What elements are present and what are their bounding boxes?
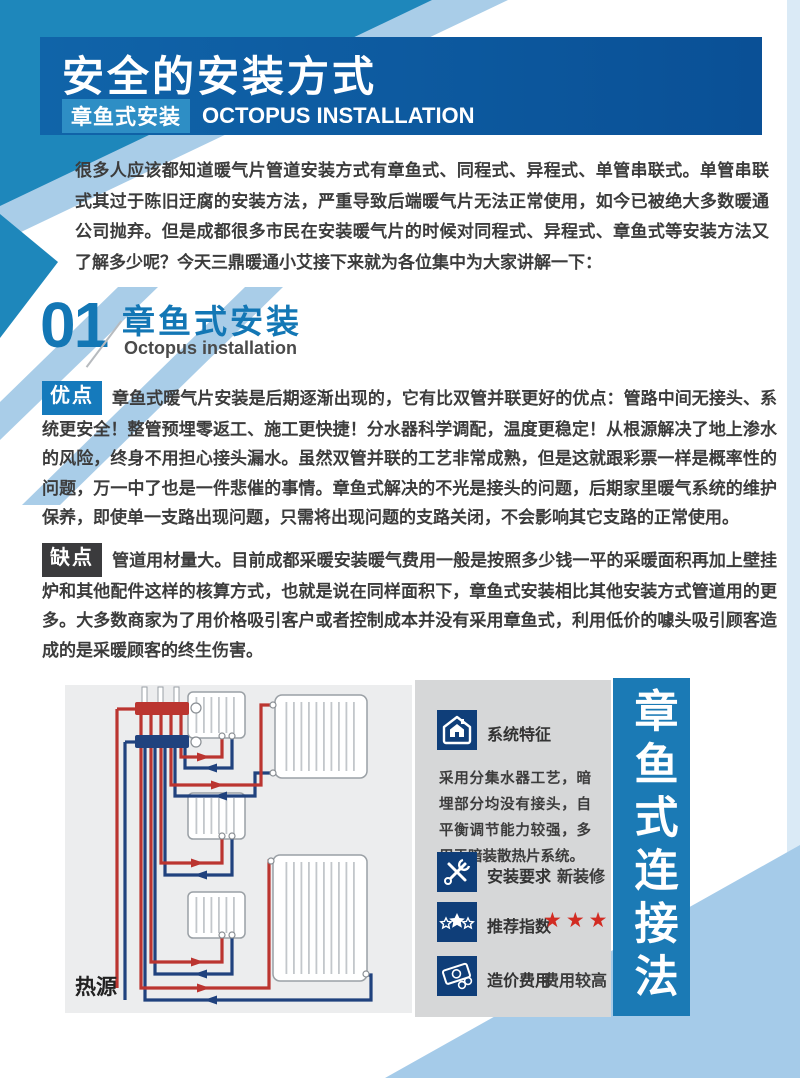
radiator-small-middle [188,793,245,839]
cost-row: 造价费用 费用较高 [415,956,611,996]
poster-page: 安全的安装方式 章鱼式安装 OCTOPUS INSTALLATION 很多人应该… [0,0,800,1078]
header-band: 安全的安装方式 章鱼式安装 OCTOPUS INSTALLATION [40,37,762,135]
header-subtitle-en: OCTOPUS INSTALLATION [202,103,475,129]
cons-text: 管道用材量大。目前成都采暖安装暖气费用一般是按照多少钱一平的采暖面积再加上壁挂炉… [42,551,777,660]
right-edge-strip [787,0,800,900]
section-subtitle-en: Octopus installation [124,338,297,359]
page-title: 安全的安装方式 [62,43,377,104]
cost-value: 费用较高 [543,967,607,991]
money-icon [437,956,477,996]
section-title: 章鱼式安装 [122,295,302,343]
pros-paragraph: 优点章鱼式暖气片安装是后期逐渐出现的，它有比双管并联更好的优点：管路中间无接头、… [42,381,777,533]
piping-diagram-panel: 热源 [65,685,412,1013]
info-panel: 系统特征 采用分集水器工艺，暗埋部分均没有接头，自平衡调节能力较强，多用于暗装散… [415,680,611,1017]
side-banner-text: 章鱼式连接法 [630,688,674,1006]
rating-label: 推荐指数 [487,913,551,937]
pros-badge: 优点 [42,381,102,415]
side-banner: 章鱼式连接法 [613,678,690,1016]
install-row: 安装要求 新装修 [415,852,611,892]
install-label: 安装要求 [487,863,551,887]
radiator-large-bottom-right [273,855,367,981]
intro-paragraph: 很多人应该都知道暖气片管道安装方式有章鱼式、同程式、异程式、单管串联式。单管串联… [75,156,769,278]
radiator-large-top-right [275,695,367,778]
octopus-piping-diagram [65,685,412,1013]
stars-icon [437,902,477,942]
feature-label: 系统特征 [487,721,551,745]
header-subtitle-row: 章鱼式安装 OCTOPUS INSTALLATION [62,99,475,133]
cost-label: 造价费用 [487,967,551,991]
cons-paragraph: 缺点管道用材量大。目前成都采暖安装暖气费用一般是按照多少钱一平的采暖面积再加上壁… [42,543,777,665]
pros-text: 章鱼式暖气片安装是后期逐渐出现的，它有比双管并联更好的优点：管路中间无接头、系统… [42,389,777,527]
header-badge: 章鱼式安装 [62,99,190,133]
flow-arrows [191,753,227,1005]
radiator-small-top [188,692,245,738]
house-icon [437,710,477,750]
tools-icon [437,852,477,892]
rating-row: 推荐指数 ★★★★★ [415,902,611,942]
install-value: 新装修 [557,863,605,887]
feature-row: 系统特征 [415,710,611,750]
heat-source-pipes [117,709,137,1000]
heat-source-label: 热源 [75,971,117,1001]
cons-badge: 缺点 [42,543,102,577]
radiator-small-lower [188,892,245,938]
